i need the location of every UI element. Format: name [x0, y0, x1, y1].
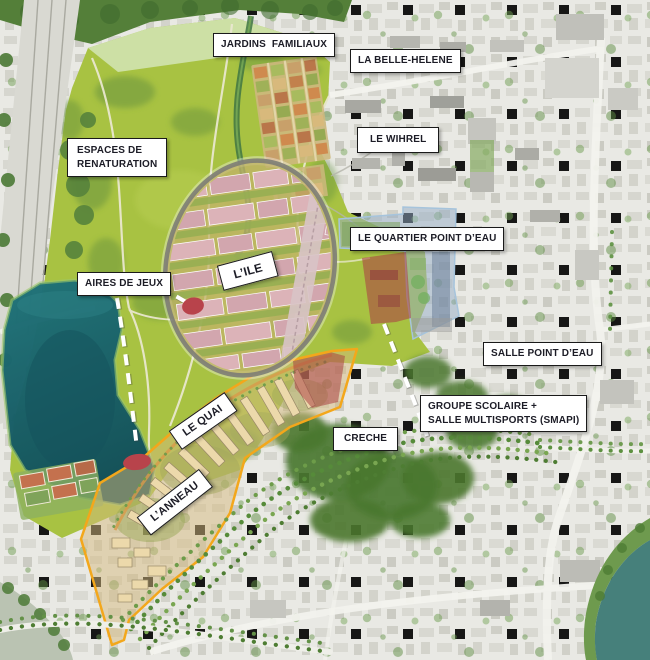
- label-le-wihrel: LE WIHREL: [357, 127, 439, 153]
- label-line: GROUPE SCOLAIRE +: [428, 400, 579, 414]
- label-jardins-familiaux: JARDINS FAMILIAUX: [213, 33, 335, 57]
- masterplan-map: JARDINS FAMILIAUX LA BELLE-HELENE LE WIH…: [0, 0, 650, 660]
- label-le-quartier-point-deau: LE QUARTIER POINT D’EAU: [350, 227, 504, 251]
- label-groupe-scolaire-smapi: GROUPE SCOLAIRE + SALLE MULTISPORTS (SMA…: [420, 395, 587, 432]
- label-creche: CRECHE: [333, 427, 398, 451]
- label-espaces-de-renaturation: ESPACES DE RENATURATION: [67, 138, 167, 177]
- aerial-map-canvas: [0, 0, 650, 660]
- label-la-belle-helene: LA BELLE-HELENE: [350, 49, 461, 73]
- label-line: SALLE MULTISPORTS (SMAPI): [428, 414, 579, 428]
- label-line: ESPACES DE: [77, 144, 157, 158]
- label-line: RENATURATION: [77, 158, 157, 172]
- label-aires-de-jeux: AIRES DE JEUX: [77, 272, 171, 296]
- label-salle-point-deau: SALLE POINT D’EAU: [483, 342, 602, 366]
